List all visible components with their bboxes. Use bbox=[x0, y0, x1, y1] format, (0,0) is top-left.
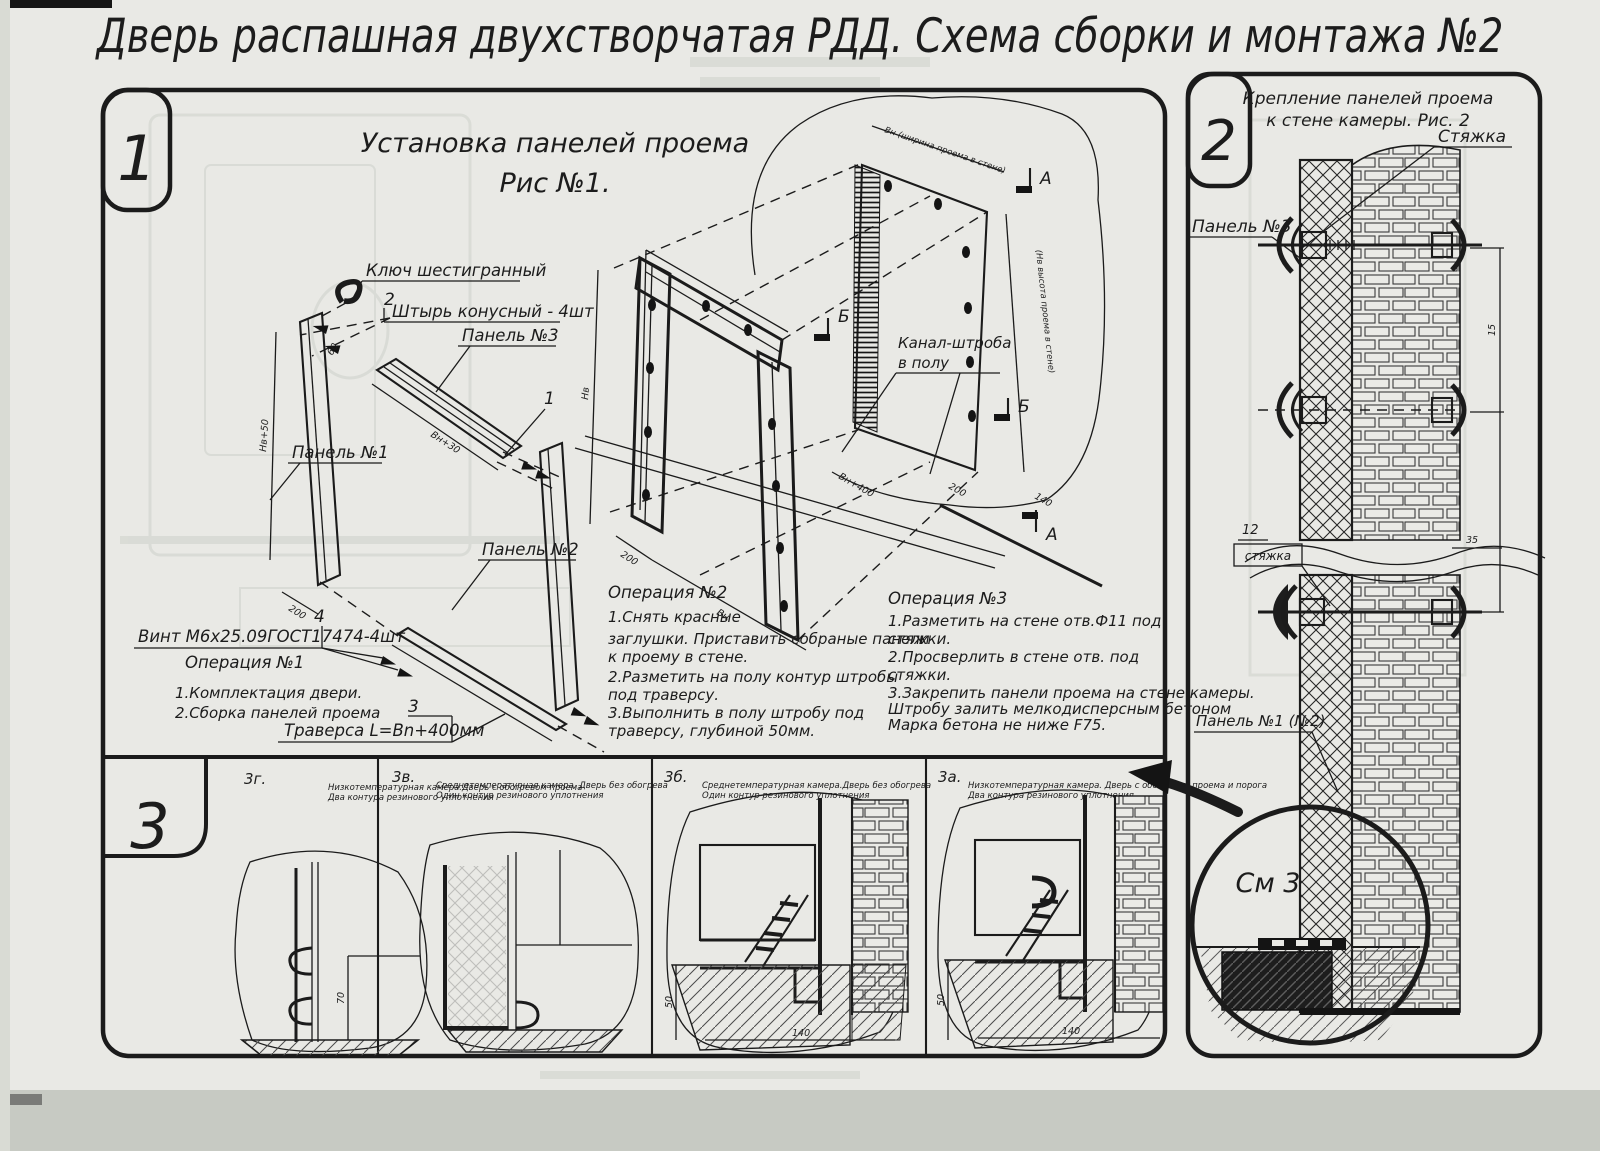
door-leaf bbox=[700, 845, 815, 940]
insulated-panel-column bbox=[1300, 160, 1352, 540]
dim-width-note: Вн (ширина проема в стене) bbox=[883, 125, 1007, 176]
seal-loop bbox=[290, 948, 312, 974]
drawing-canvas: Дверь распашная двухстворчатая РДД. Схем… bbox=[0, 0, 1600, 1151]
op2-line: к проему в стене. bbox=[608, 648, 748, 666]
dim-70: 70 bbox=[336, 992, 347, 1004]
section3-number: 3 bbox=[130, 790, 169, 863]
pin-label: Штырь конусный - 4шт bbox=[392, 302, 594, 321]
ghost-bleedthrough bbox=[120, 62, 1465, 1075]
op3-line: стяжки. bbox=[888, 630, 951, 648]
op1-line1: 1.Комплектация двери. bbox=[175, 684, 362, 702]
panel1-label: Панель №1 bbox=[292, 443, 389, 462]
callout-3: 3 bbox=[408, 697, 419, 717]
door-leaf bbox=[975, 840, 1080, 935]
detail-3b-id: 3б. bbox=[664, 768, 688, 786]
dim-50: 50 bbox=[936, 994, 947, 1006]
marker-a-top: А bbox=[1039, 169, 1052, 189]
op2-line: 2.Разметить на полу контур штробы bbox=[608, 668, 898, 686]
dim-height-note: (Нв высота проема в стене) bbox=[1033, 249, 1056, 374]
detail-3g: 3г. Низкотемпературная камера.Дверь с об… bbox=[235, 770, 582, 1056]
detail-3b-caption1: Среднетемпературная камера.Дверь без обо… bbox=[702, 781, 931, 791]
brick-column bbox=[1115, 796, 1163, 1012]
hex-key-label: Ключ шестигранный bbox=[366, 261, 547, 280]
op3-line: Марка бетона не ниже F75. bbox=[888, 716, 1106, 734]
opening-dots bbox=[884, 180, 976, 422]
op2-line: 1.Снять красные bbox=[608, 608, 741, 626]
see-detail-label: См 3 bbox=[1236, 868, 1301, 899]
op2-line: 3.Выполнить в полу штробу под bbox=[608, 704, 864, 722]
op2-title: Операция №2 bbox=[608, 583, 727, 602]
traverse-label: Траверса L=Bn+400мм bbox=[284, 721, 484, 740]
detail-3a-caption1: Низкотемпературная камера. Дверь с обогр… bbox=[968, 781, 1267, 791]
concrete-block bbox=[1222, 952, 1332, 1010]
detail-3b: 3б. Среднетемпературная камера.Дверь без… bbox=[664, 768, 931, 1052]
panel2-shape bbox=[540, 443, 578, 710]
tie12-number: 12 bbox=[1242, 523, 1259, 538]
panel12-label: Панель №1 (№2) bbox=[1196, 712, 1325, 730]
marker-a-bottom: А bbox=[1045, 525, 1058, 545]
tie12-label: стяжка bbox=[1245, 549, 1291, 563]
detail-3a-id: 3а. bbox=[938, 768, 962, 786]
dim-200-b: 200 bbox=[618, 549, 639, 568]
seal-ladder bbox=[745, 895, 808, 968]
seal-loop bbox=[516, 1002, 538, 1028]
screw-label: Винт М6х25.09ГОСТ17474-4шт bbox=[138, 627, 405, 646]
section2-title-line1: Крепление панелей проема bbox=[1243, 89, 1494, 109]
op3-line: 1.Разметить на стене отв.Ф11 под bbox=[888, 612, 1161, 630]
seal-loop bbox=[290, 998, 312, 1024]
dim-nv: Нв bbox=[580, 386, 592, 400]
channel-label-line1: Канал-штроба bbox=[898, 334, 1011, 352]
section1-title-line2: Рис №1. bbox=[499, 168, 610, 199]
opening-hatched-strip bbox=[853, 165, 880, 432]
detail-3v-caption1: Среднетемпературная камера. Дверь без об… bbox=[436, 781, 668, 791]
detail-3v-id: 3в. bbox=[392, 768, 415, 786]
tie-label: Стяжка bbox=[1438, 127, 1506, 147]
section1-number: 1 bbox=[117, 122, 156, 195]
section1-panel-installation: 1 Установка панелей проема Рис №1. bbox=[103, 90, 1255, 1056]
section2-wall-fixing: 2 Крепление панелей проема к стене камер… bbox=[1128, 74, 1545, 1056]
op1-title: Операция №1 bbox=[185, 653, 304, 672]
dim-35: 35 bbox=[1466, 535, 1478, 546]
wall-outline bbox=[751, 96, 1104, 508]
op2-line: под траверсу. bbox=[608, 686, 719, 704]
dim-50: 50 bbox=[664, 996, 675, 1008]
op2-line: заглушки. Приставить собраные панели bbox=[608, 630, 930, 648]
channel-label-line2: в полу bbox=[898, 354, 950, 372]
drawing-title: Дверь распашная двухстворчатая РДД. Схем… bbox=[95, 9, 1504, 64]
traverse-shape bbox=[398, 628, 566, 730]
panel3-label: Панель №3 bbox=[462, 326, 559, 345]
dim-140: 140 bbox=[792, 1028, 810, 1039]
wall-floor-edge bbox=[940, 505, 1102, 586]
op1-line2: 2.Сборка панелей проема bbox=[175, 704, 380, 722]
scanned-assembly-drawing: Дверь распашная двухстворчатая РДД. Схем… bbox=[0, 0, 1600, 1151]
op3-line: 2.Просверлить в стене отв. под bbox=[888, 648, 1139, 666]
op3-title: Операция №3 bbox=[888, 589, 1007, 608]
assembled-frame-drawing: Канал-штроба в полу А А Б Б Нв 200 Вн bbox=[575, 96, 1105, 650]
op3-line: стяжки. bbox=[888, 666, 951, 684]
frame-right-rail bbox=[758, 352, 798, 640]
seal-ladder bbox=[1006, 890, 1068, 962]
section1-border bbox=[103, 90, 1165, 1056]
dim-vn400: Вн+400 bbox=[837, 471, 876, 500]
marker-b-left: Б bbox=[838, 307, 850, 327]
dim-15: 15 bbox=[1487, 324, 1498, 336]
detail-3g-id: 3г. bbox=[244, 770, 266, 788]
panel3-label-sec2: Панель №3 bbox=[1192, 217, 1292, 237]
callout-4: 4 bbox=[314, 607, 325, 627]
dim-60: 60 bbox=[325, 342, 341, 358]
operation2-text: Операция №2 1.Снять красные заглушки. Пр… bbox=[608, 583, 930, 740]
panel2-label: Панель №2 bbox=[482, 540, 579, 559]
dim-140: 140 bbox=[1062, 1026, 1080, 1037]
detail-3v-caption2: Один контур резинового уплотнения bbox=[436, 791, 603, 801]
section2-number: 2 bbox=[1201, 109, 1237, 174]
section3-threshold-details: 3 3г. Низкотемпературная камера.Дверь с … bbox=[103, 757, 1267, 1056]
dim-nv50: Нв+50 bbox=[258, 419, 271, 452]
detail-3v: 3в. Среднетемпературная камера. Дверь бе… bbox=[392, 768, 668, 1052]
op2-line: траверсу, глубиной 50мм. bbox=[608, 722, 815, 740]
callout-1: 1 bbox=[544, 389, 555, 409]
section1-title-line1: Установка панелей проема bbox=[361, 128, 749, 159]
dim-140-a: 140 bbox=[1033, 491, 1054, 510]
